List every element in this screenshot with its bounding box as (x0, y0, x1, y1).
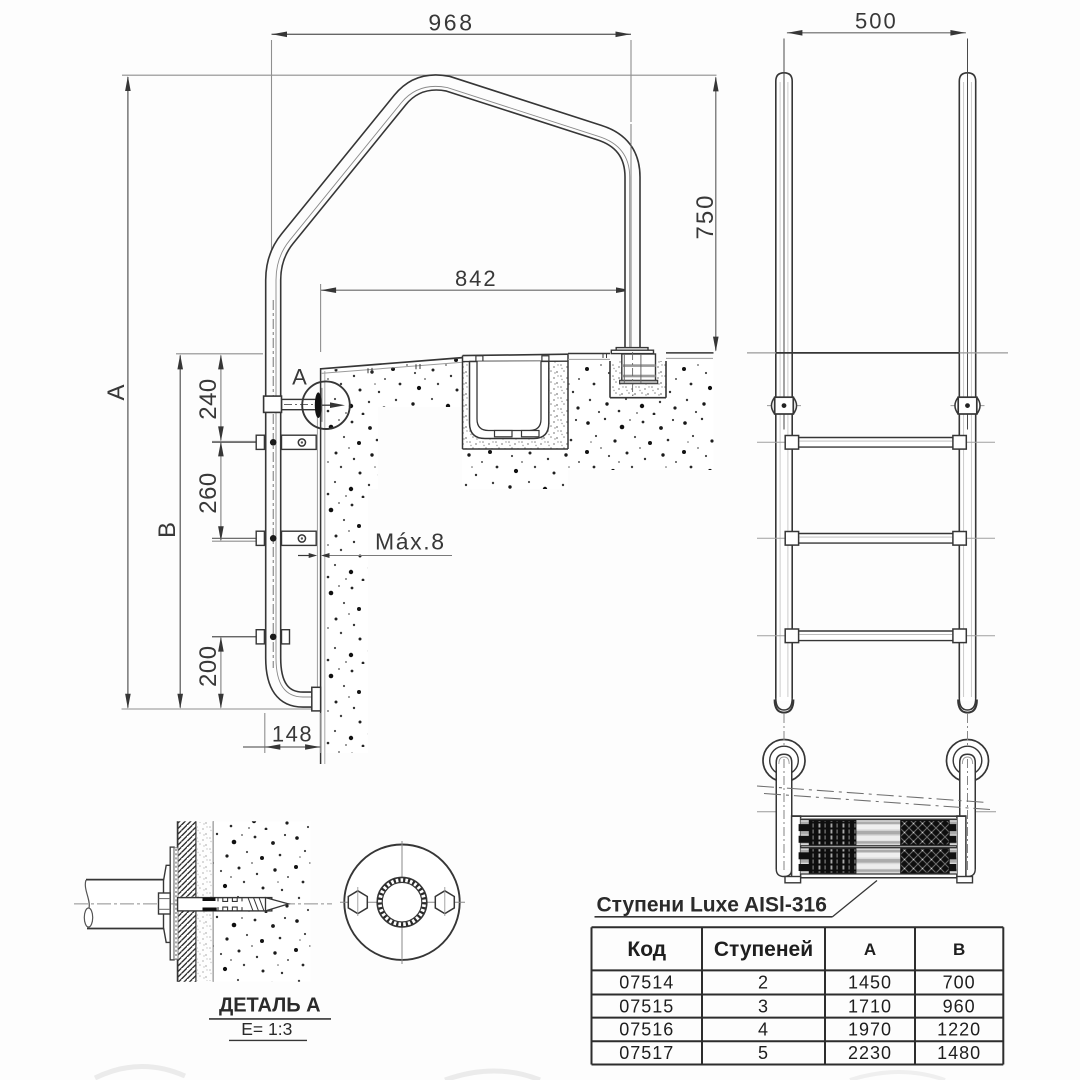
svg-text:ДЕТАЛЬ A: ДЕТАЛЬ A (219, 995, 321, 1017)
svg-text:2: 2 (758, 973, 769, 993)
svg-text:Код: Код (627, 938, 666, 961)
svg-text:1450: 1450 (848, 973, 892, 993)
svg-text:1220: 1220 (937, 1020, 981, 1040)
svg-text:700: 700 (943, 973, 976, 993)
svg-text:500: 500 (855, 9, 898, 34)
svg-text:Máx.8: Máx.8 (375, 529, 446, 555)
svg-text:4: 4 (758, 1020, 769, 1040)
svg-text:750: 750 (692, 193, 719, 239)
svg-text:E= 1:3: E= 1:3 (241, 1019, 292, 1039)
svg-text:842: 842 (455, 266, 498, 291)
svg-text:200: 200 (195, 645, 222, 687)
svg-text:3: 3 (758, 996, 769, 1016)
svg-text:07516: 07516 (619, 1020, 674, 1040)
svg-text:A: A (864, 940, 876, 959)
svg-text:960: 960 (943, 996, 976, 1016)
svg-text:260: 260 (195, 472, 222, 514)
svg-text:968: 968 (428, 10, 474, 36)
svg-text:07517: 07517 (619, 1043, 674, 1063)
svg-text:1480: 1480 (937, 1043, 981, 1063)
svg-text:A: A (103, 384, 130, 400)
svg-text:07515: 07515 (619, 996, 674, 1016)
svg-text:2230: 2230 (848, 1043, 892, 1063)
svg-text:1970: 1970 (848, 1020, 892, 1040)
svg-text:148: 148 (272, 722, 313, 747)
svg-text:B: B (953, 940, 965, 959)
svg-text:B: B (154, 522, 181, 538)
svg-text:240: 240 (195, 378, 222, 420)
svg-text:Ступеней: Ступеней (714, 938, 813, 961)
svg-text:Ступени Luxe AISl-316: Ступени Luxe AISl-316 (597, 894, 827, 917)
svg-text:A: A (292, 365, 307, 390)
svg-text:5: 5 (758, 1043, 769, 1063)
svg-text:1710: 1710 (848, 996, 892, 1016)
svg-text:07514: 07514 (619, 973, 674, 993)
